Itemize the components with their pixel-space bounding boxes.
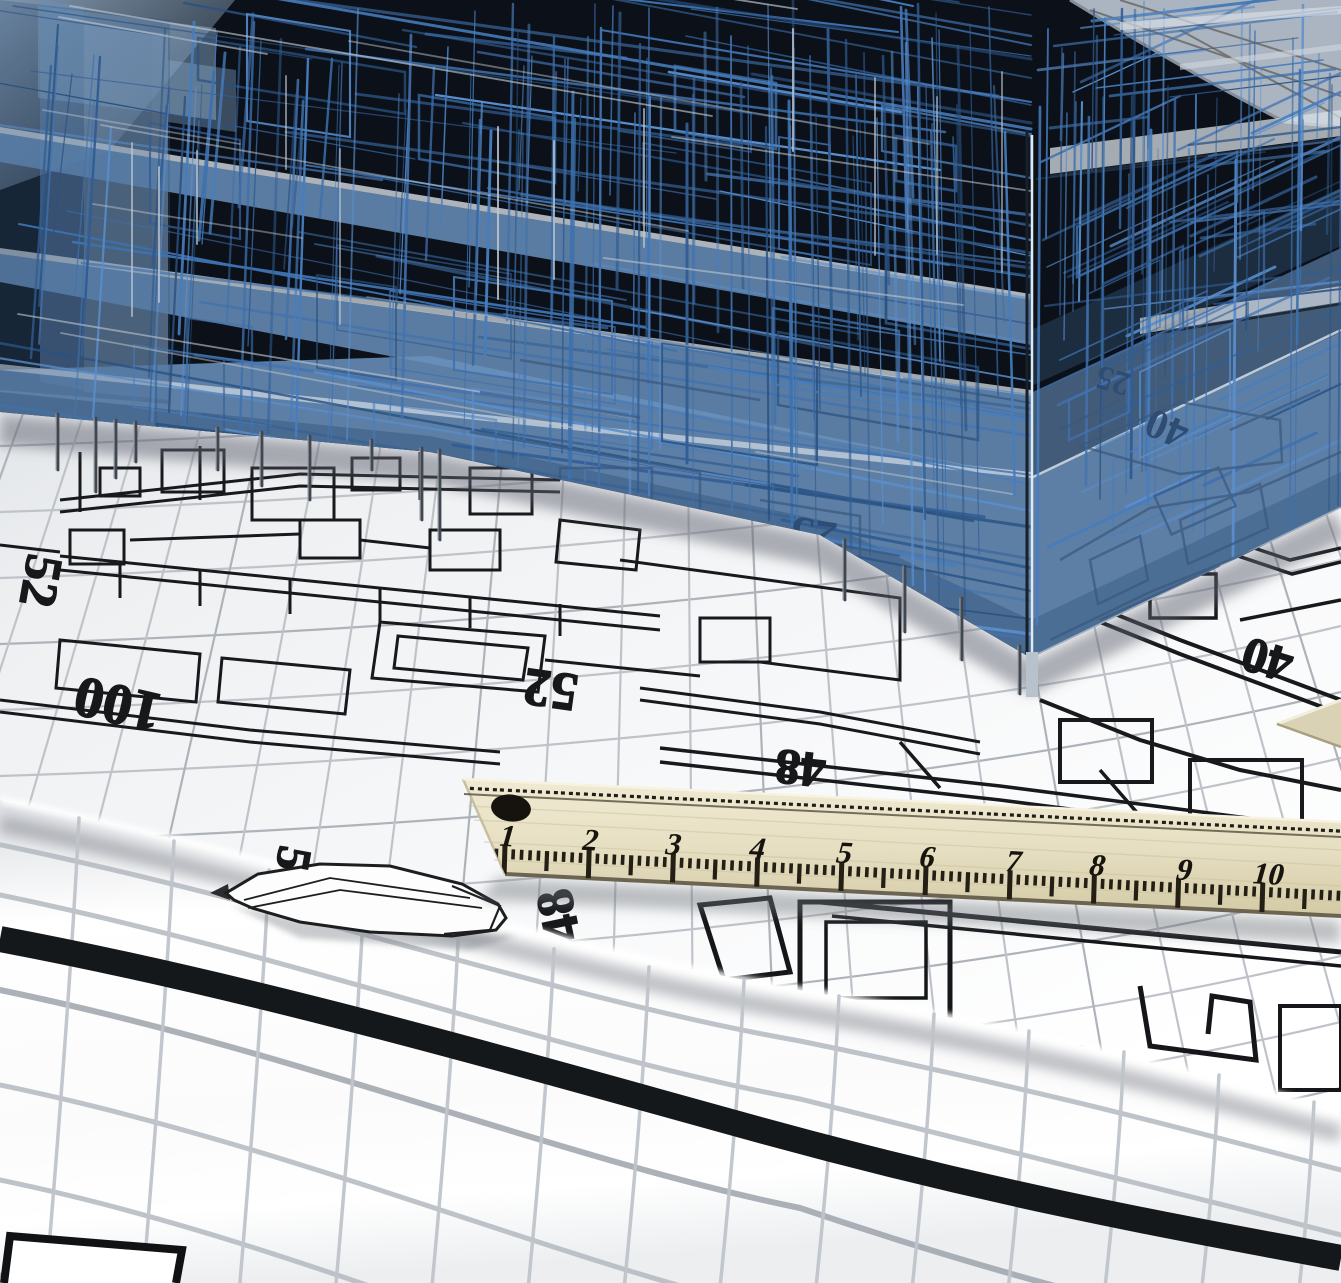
svg-text:48: 48 xyxy=(772,738,828,799)
svg-text:52: 52 xyxy=(8,550,73,611)
svg-text:52: 52 xyxy=(520,656,582,723)
